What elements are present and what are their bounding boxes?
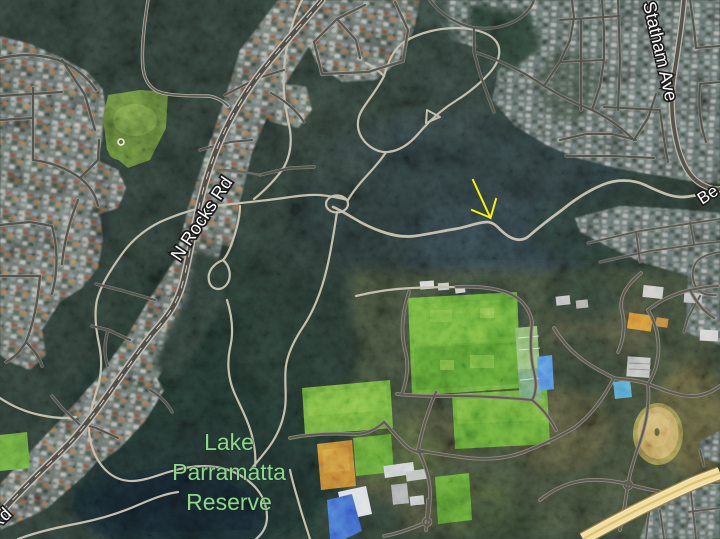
svg-text:Reserve: Reserve <box>186 489 272 515</box>
svg-text:Lake: Lake <box>204 429 254 455</box>
svg-text:Parramatta: Parramatta <box>172 459 286 485</box>
